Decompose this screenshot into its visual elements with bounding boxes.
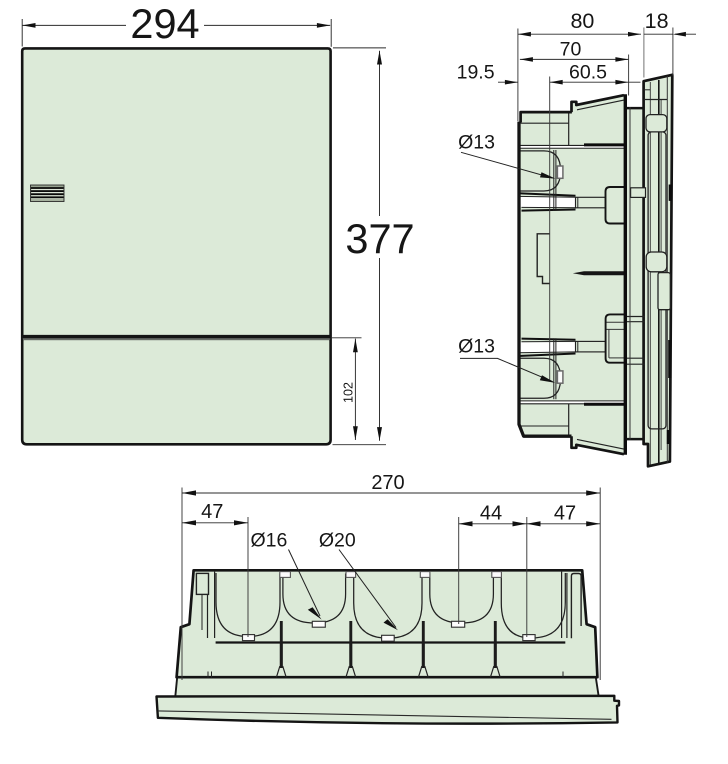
svg-text:19.5: 19.5 — [457, 62, 495, 84]
svg-text:Ø16: Ø16 — [250, 530, 287, 552]
svg-text:47: 47 — [201, 501, 223, 523]
svg-text:47: 47 — [554, 503, 576, 525]
svg-text:70: 70 — [560, 38, 582, 60]
svg-text:Ø13: Ø13 — [458, 131, 495, 153]
svg-text:60.5: 60.5 — [569, 62, 607, 84]
svg-text:102: 102 — [341, 382, 355, 403]
svg-text:Ø13: Ø13 — [458, 336, 495, 358]
svg-text:294: 294 — [130, 0, 199, 47]
svg-text:44: 44 — [480, 503, 502, 525]
svg-text:80: 80 — [570, 9, 594, 33]
svg-text:18: 18 — [645, 9, 669, 33]
svg-text:Ø20: Ø20 — [319, 530, 356, 552]
svg-text:270: 270 — [371, 472, 404, 494]
svg-text:377: 377 — [345, 215, 414, 262]
